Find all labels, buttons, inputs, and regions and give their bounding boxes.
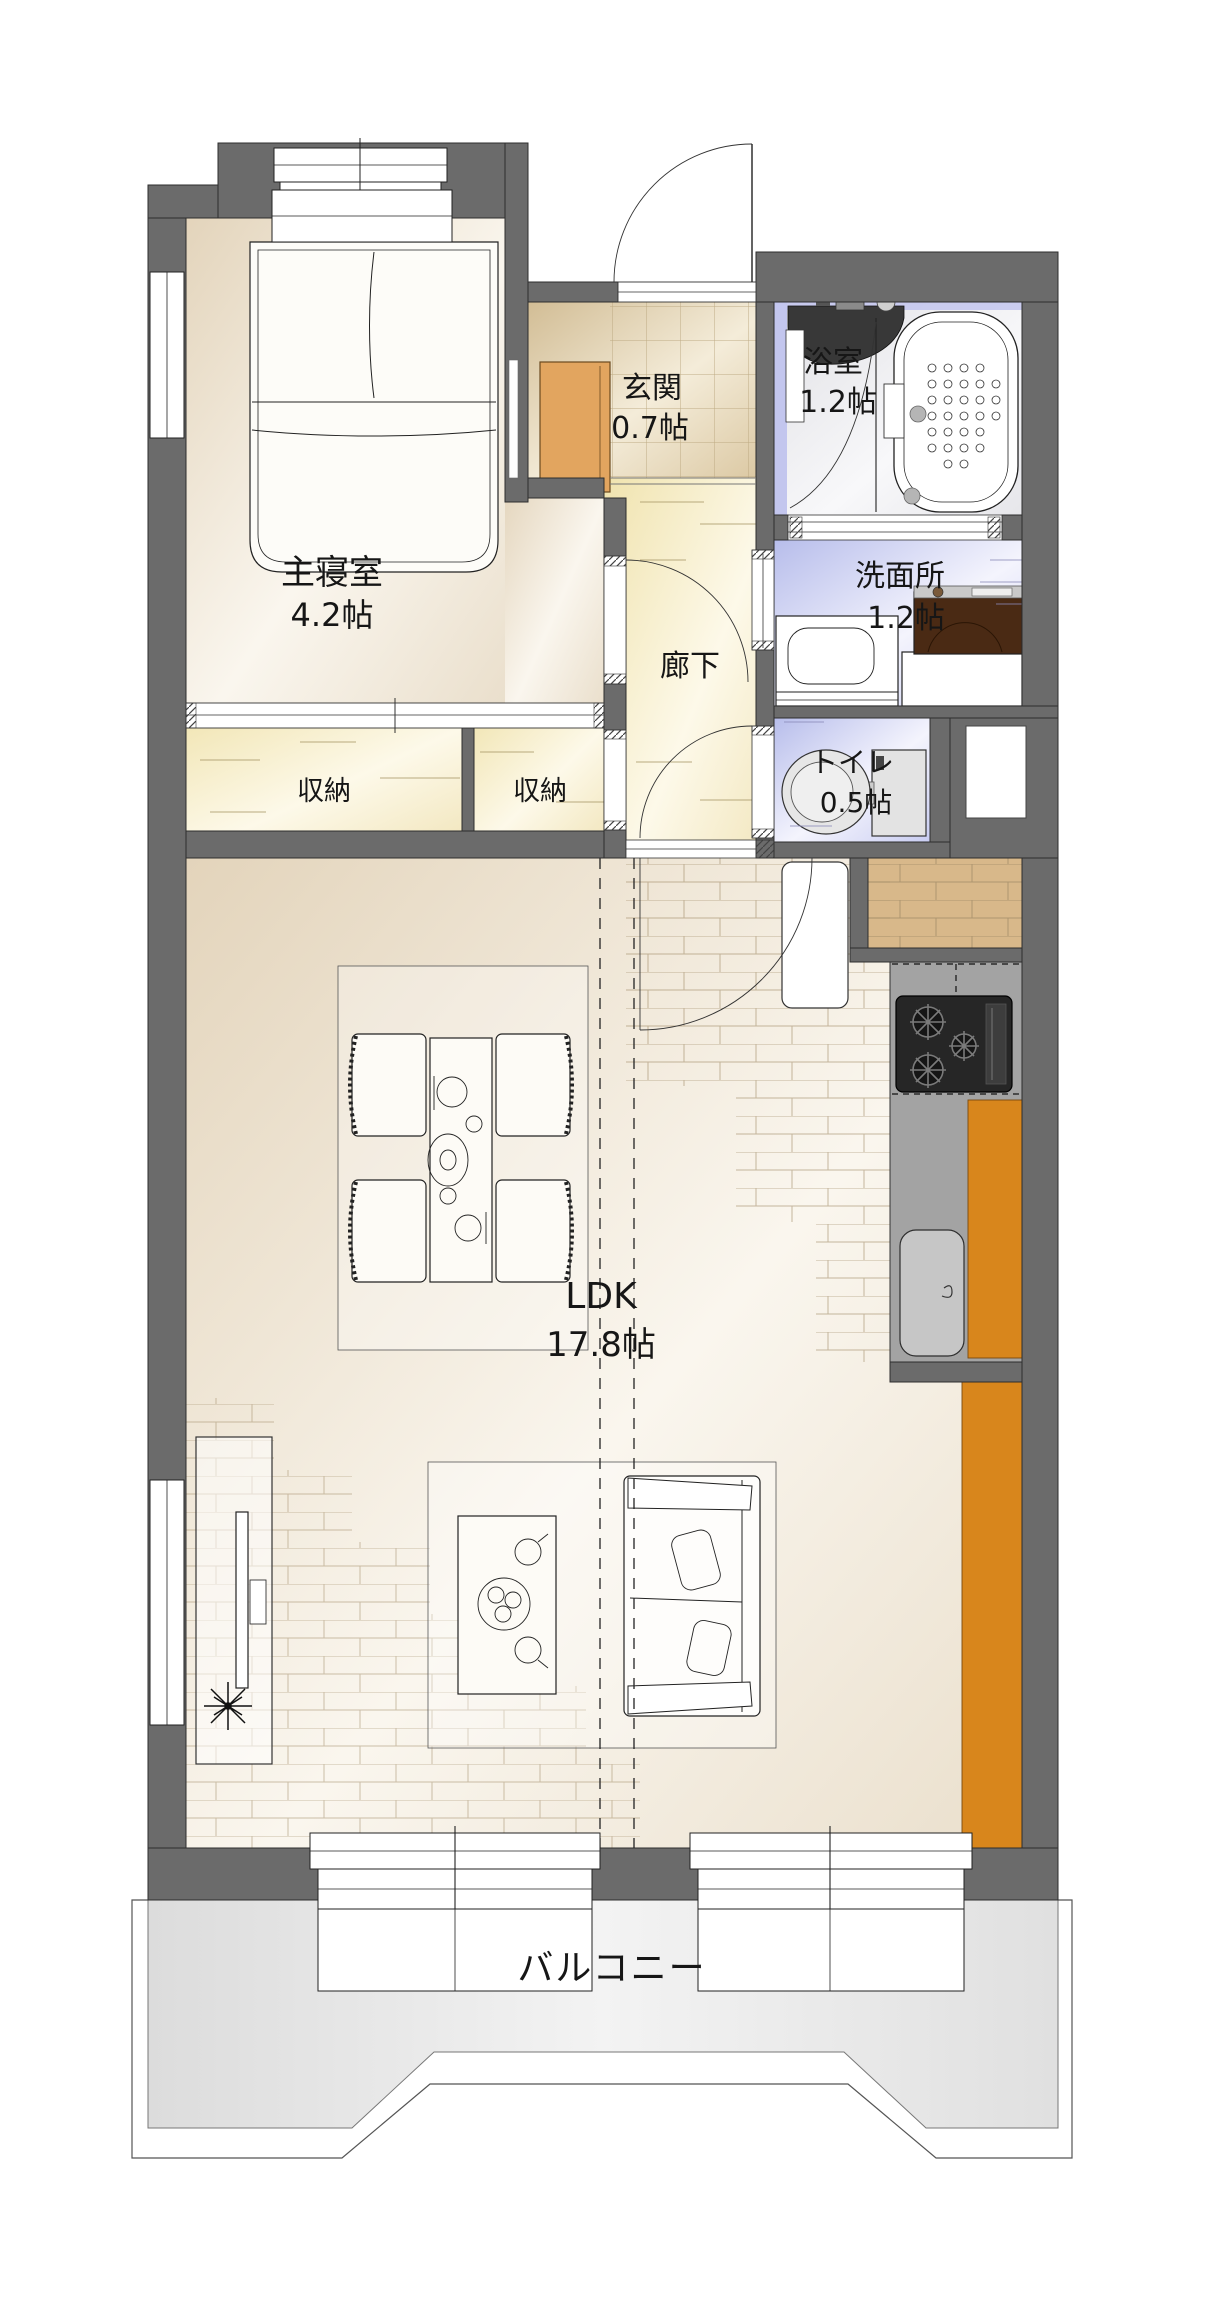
room-bedroom-extension — [505, 478, 604, 703]
label-storage-right: 収納 — [513, 776, 567, 807]
wall — [1002, 515, 1022, 540]
plant-icon — [204, 1682, 252, 1730]
kitchen-side-cabinet-orange — [962, 1382, 1022, 1848]
wall — [774, 842, 950, 858]
label-storage-left: 収納 — [297, 776, 351, 807]
bathtub-seat — [884, 384, 904, 438]
label-ldk-size: 17.8帖 — [546, 1325, 656, 1365]
bed-headboard — [272, 190, 452, 242]
wall — [890, 1362, 1022, 1382]
chair — [352, 1034, 426, 1136]
wall — [930, 718, 950, 842]
bedroom-side-window — [150, 272, 184, 438]
tv-stand — [250, 1580, 266, 1624]
kitchen-alcove-wood-pattern — [868, 858, 1022, 948]
shoe-cabinet — [540, 362, 610, 492]
label-ldk-name: LDK — [565, 1276, 638, 1317]
label-bedroom-size: 4.2帖 — [291, 596, 374, 634]
tv-screen — [236, 1512, 248, 1688]
floorplan-drawing: 主寝室 4.2帖 玄関 0.7帖 浴室 1.2帖 洗面所 1.2帖 トイレ 0.… — [0, 0, 1222, 2322]
wall — [850, 858, 868, 962]
label-bathroom-size: 1.2帖 — [799, 385, 877, 420]
label-balcony: バルコニー — [517, 1948, 706, 1989]
wall — [186, 831, 604, 858]
wall — [528, 478, 604, 498]
balcony-window-right — [690, 1826, 972, 1991]
bathtub-drain — [904, 488, 920, 504]
wall-slit-window — [509, 360, 518, 478]
label-entrance-size: 0.7帖 — [611, 411, 689, 446]
wall — [774, 515, 788, 540]
bathtub-knob — [910, 406, 926, 422]
chair — [496, 1034, 570, 1136]
washroom-sliding-door — [752, 550, 774, 650]
wall — [462, 728, 474, 831]
floorplan-page: 主寝室 4.2帖 玄関 0.7帖 浴室 1.2帖 洗面所 1.2帖 トイレ 0.… — [0, 0, 1222, 2322]
washer-pedestal — [902, 652, 1022, 706]
kitchen-sink — [900, 1230, 964, 1356]
sofa — [624, 1476, 760, 1716]
wall — [850, 948, 1022, 962]
chair — [352, 1180, 426, 1282]
toilet-door-frame — [752, 726, 774, 838]
refrigerator — [782, 862, 848, 1008]
storage-door-frame — [604, 730, 626, 830]
wall — [148, 185, 218, 218]
label-washroom-size: 1.2帖 — [867, 601, 945, 636]
label-toilet-name: トイレ — [810, 746, 894, 779]
closet-sliding-doors — [186, 698, 604, 733]
wall — [774, 706, 1058, 718]
label-bathroom-name: 浴室 — [803, 345, 863, 380]
kitchen-cabinet-orange — [968, 1100, 1022, 1358]
washer-slot — [972, 588, 1012, 596]
label-washroom-name: 洗面所 — [855, 559, 945, 594]
label-hallway: 廊下 — [660, 649, 720, 684]
label-entrance-name: 玄関 — [622, 371, 682, 406]
wall — [1022, 302, 1058, 1848]
label-bedroom-name: 主寝室 — [281, 553, 383, 593]
stove-grill-panel — [986, 1004, 1006, 1084]
bathroom-threshold — [788, 515, 1002, 540]
wall — [528, 282, 618, 302]
entrance-door-arc — [614, 144, 752, 282]
pipe-space — [966, 726, 1026, 818]
bed — [250, 242, 498, 572]
bedroom-door-frame — [604, 556, 626, 684]
label-toilet-size: 0.5帖 — [820, 786, 893, 819]
bathroom-lavender-strip-left — [774, 302, 787, 515]
hatch-pillar — [756, 840, 774, 858]
ldk-side-window — [150, 1480, 184, 1725]
chair — [496, 1180, 570, 1282]
wall — [756, 252, 1058, 302]
dining-table — [430, 1038, 492, 1282]
